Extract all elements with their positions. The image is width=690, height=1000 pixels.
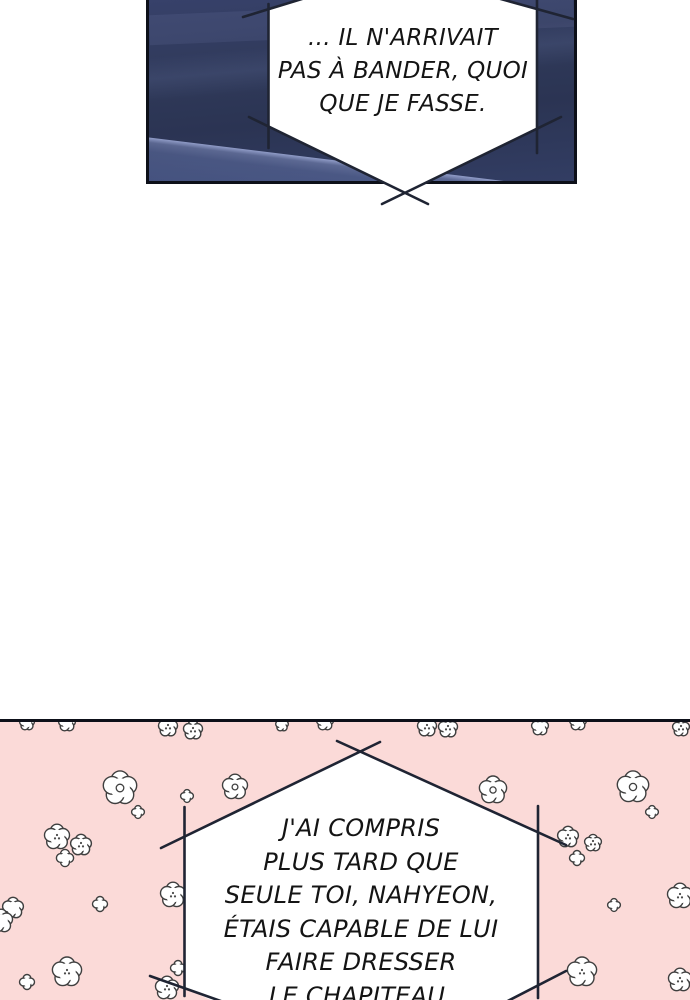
speech-line: J'AI COMPRIS xyxy=(184,812,538,846)
speech-bubble-text-top: ... IL N'ARRIVAIT PAS À BANDER, QUOI QUE… xyxy=(258,22,548,121)
speech-line: SEULE TOI, NAHYEON, xyxy=(184,879,538,913)
speech-line: PAS À BANDER, QUOI xyxy=(258,55,548,88)
comic-page: ... IL N'ARRIVAIT PAS À BANDER, QUOI QUE… xyxy=(0,0,690,1000)
speech-line: PLUS TARD QUE xyxy=(184,846,538,880)
floor-light-streak xyxy=(146,135,577,184)
speech-line: FAIRE DRESSER xyxy=(184,946,538,980)
speech-line: ÉTAIS CAPABLE DE LUI xyxy=(184,913,538,947)
speech-bubble-text-bottom: J'AI COMPRIS PLUS TARD QUE SEULE TOI, NA… xyxy=(184,812,538,1000)
speech-line: ... IL N'ARRIVAIT xyxy=(258,22,548,55)
speech-line: QUE JE FASSE. xyxy=(258,88,548,121)
speech-line: LE CHAPITEAU. xyxy=(184,980,538,1000)
